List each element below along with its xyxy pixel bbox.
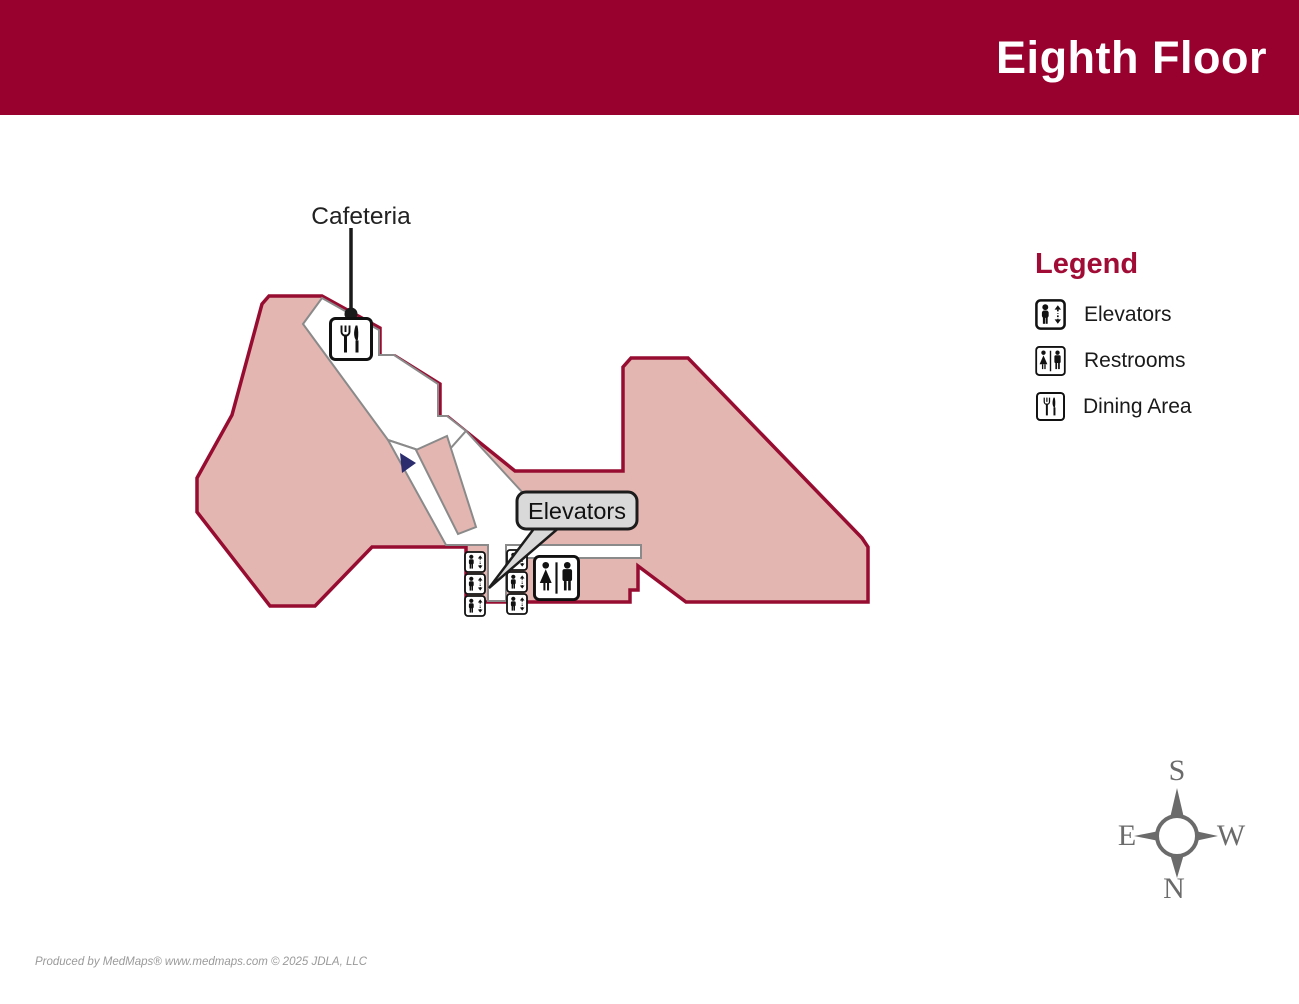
compass-letter-e: E bbox=[1118, 819, 1136, 852]
legend-item: Dining Area bbox=[1035, 392, 1285, 421]
elevator-icon bbox=[507, 594, 527, 614]
legend: Legend Elevators Restrooms Dining Area bbox=[1035, 248, 1285, 437]
compass-letter-n: N bbox=[1163, 872, 1185, 905]
compass-point-top bbox=[1170, 788, 1184, 818]
compass-point-left bbox=[1134, 831, 1159, 841]
page: Cafeteria Elevators S N bbox=[0, 0, 1299, 1004]
header-banner: Eighth Floor bbox=[0, 0, 1299, 115]
restroom-icon bbox=[1035, 346, 1066, 376]
legend-title: Legend bbox=[1035, 248, 1285, 281]
elevator-icon bbox=[465, 552, 485, 572]
compass: S N E W bbox=[1118, 754, 1246, 905]
elevator-icon bbox=[465, 574, 485, 594]
compass-letter-s: S bbox=[1169, 754, 1186, 787]
dining-icon bbox=[331, 319, 372, 360]
floor-map-svg: Cafeteria Elevators S N bbox=[0, 0, 1299, 1004]
restroom-icon bbox=[534, 556, 578, 599]
compass-ring bbox=[1157, 816, 1197, 856]
legend-item: Restrooms bbox=[1035, 346, 1285, 376]
legend-item-label: Elevators bbox=[1084, 303, 1172, 327]
legend-item-label: Restrooms bbox=[1084, 349, 1186, 373]
building-area bbox=[197, 296, 868, 606]
elevator-icon bbox=[507, 572, 527, 592]
legend-item-label: Dining Area bbox=[1083, 395, 1192, 419]
elevators-callout-label: Elevators bbox=[528, 498, 626, 524]
compass-letter-w: W bbox=[1217, 819, 1246, 852]
elevator-icon bbox=[465, 596, 485, 616]
elevator-icon bbox=[1035, 299, 1066, 330]
compass-point-right bbox=[1195, 831, 1218, 841]
dining-icon bbox=[1035, 392, 1065, 421]
page-title: Eighth Floor bbox=[0, 0, 1299, 115]
cafeteria-label: Cafeteria bbox=[311, 203, 411, 230]
footer-credit: Produced by MedMaps® www.medmaps.com © 2… bbox=[35, 956, 367, 968]
legend-item: Elevators bbox=[1035, 299, 1285, 330]
